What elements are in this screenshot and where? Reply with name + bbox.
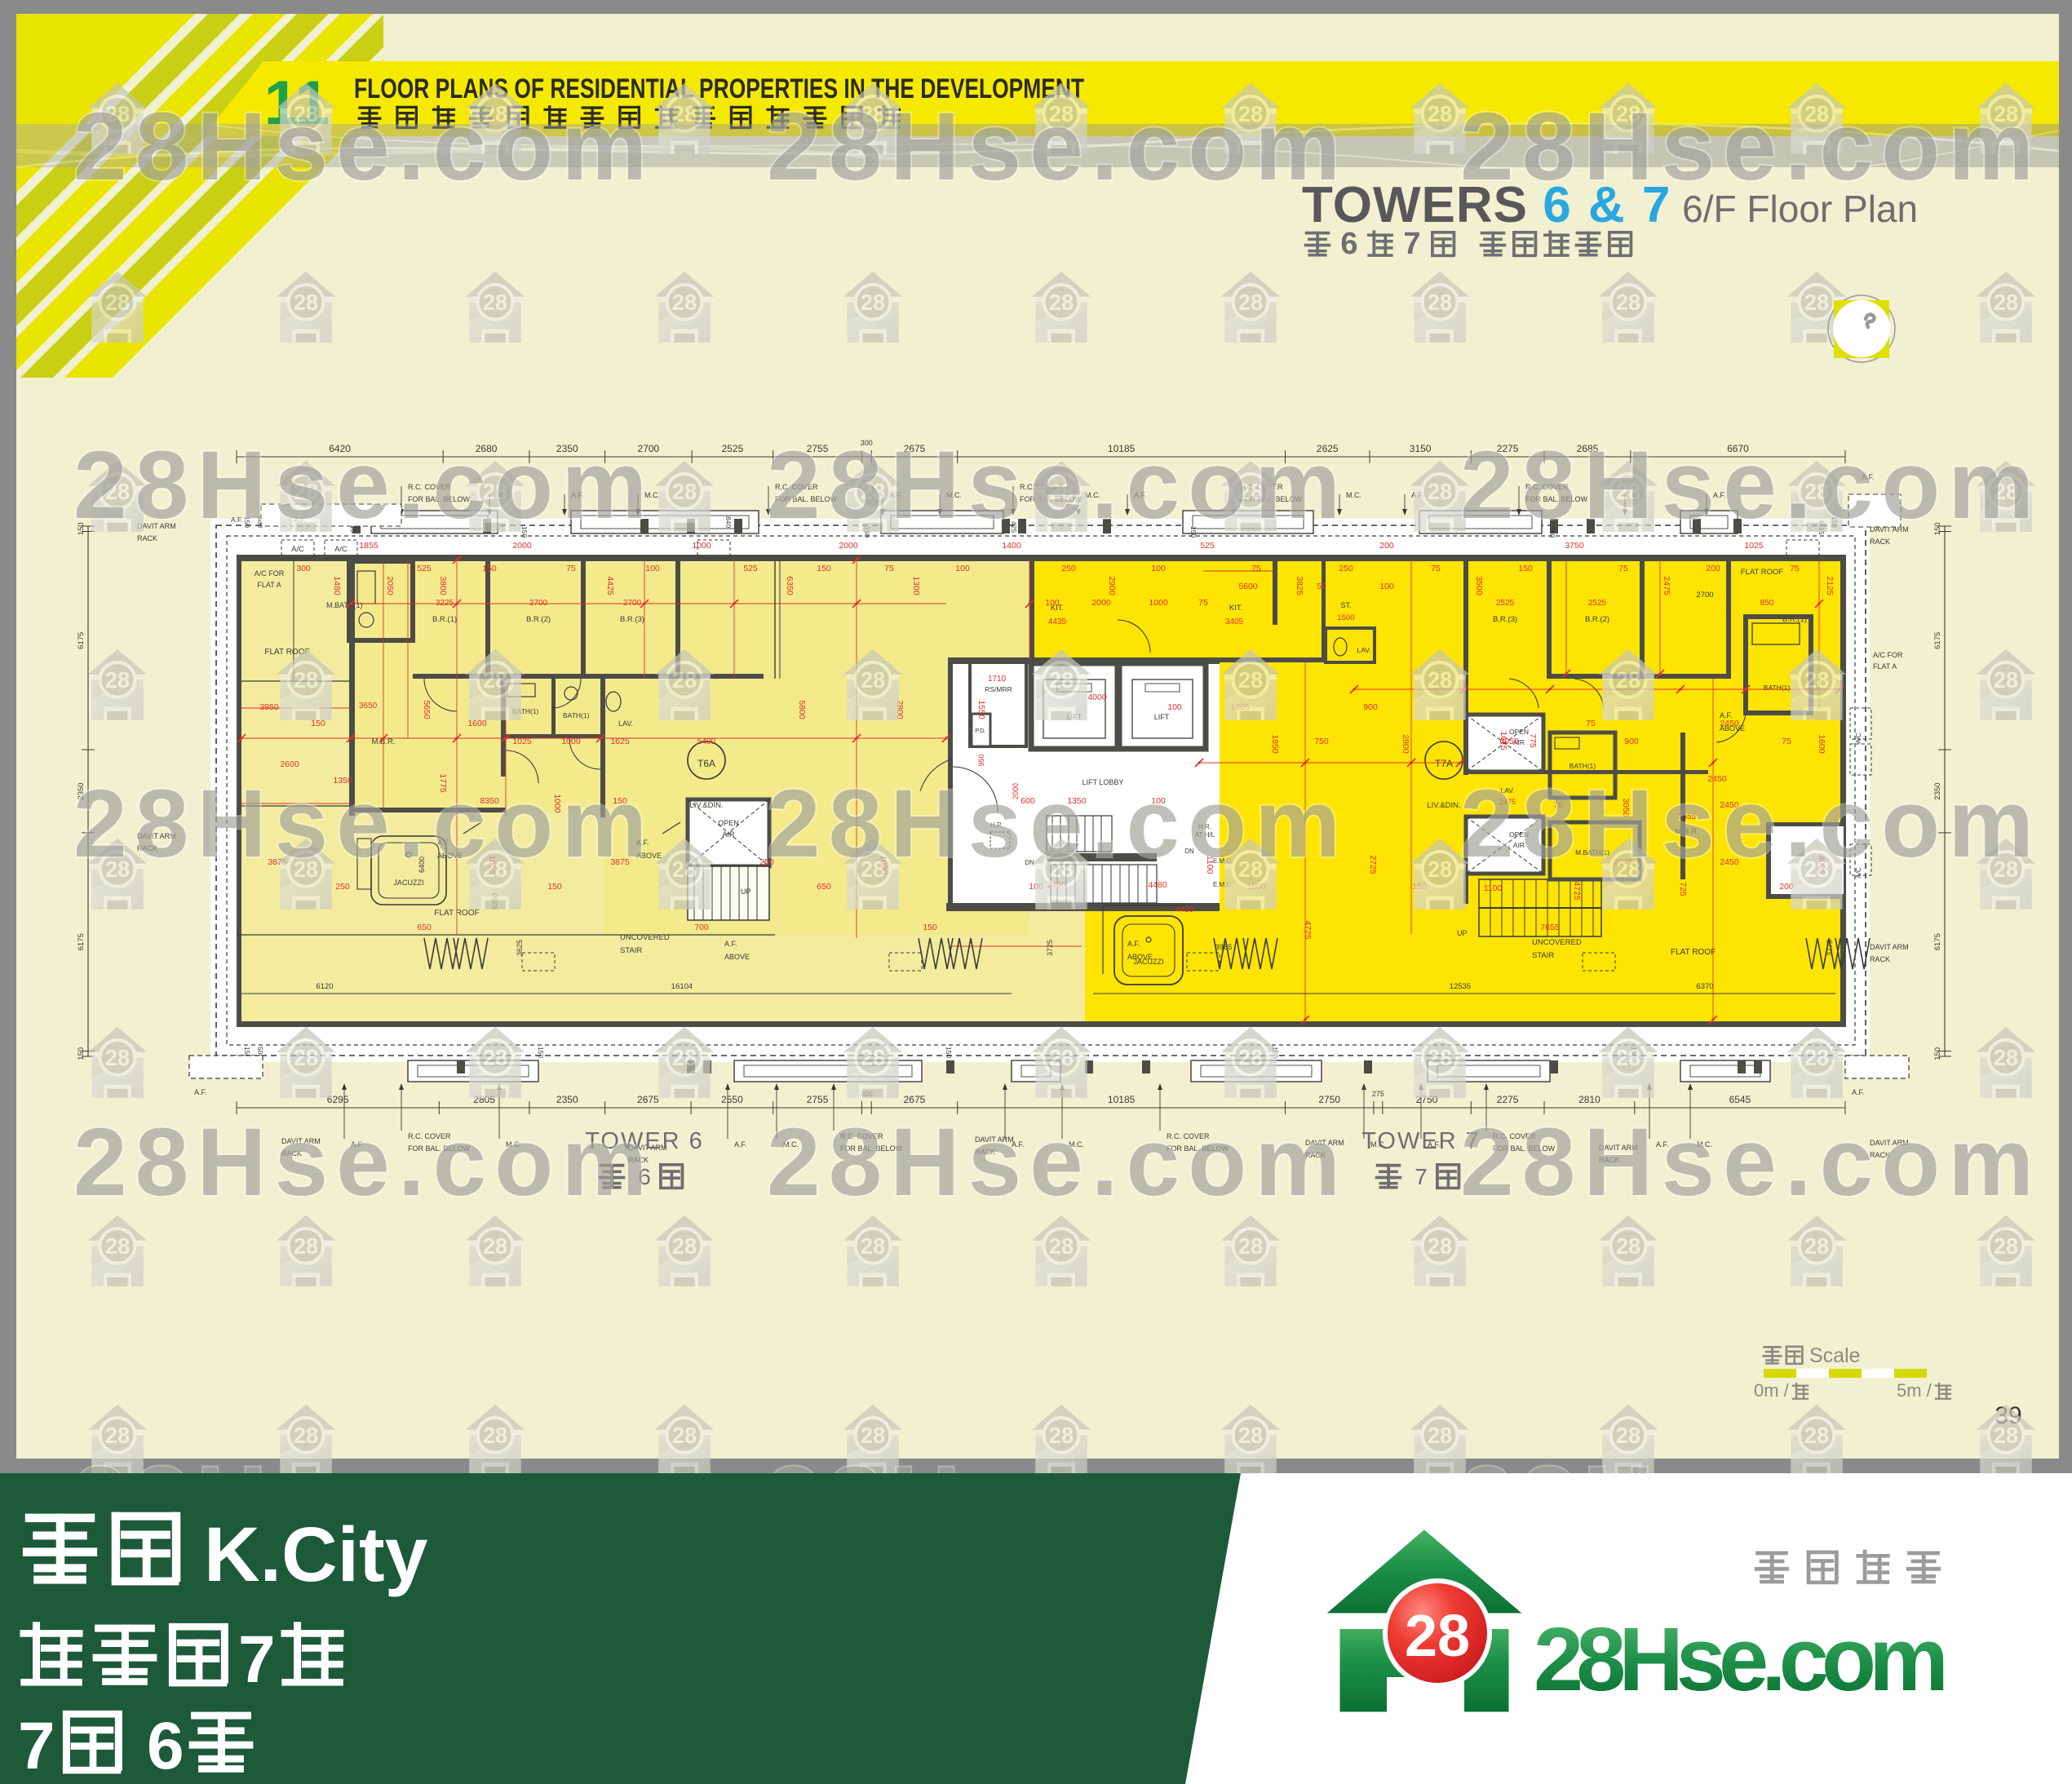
svg-text:DAVIT ARM: DAVIT ARM <box>1870 943 1909 951</box>
svg-text:4725: 4725 <box>1572 881 1582 901</box>
svg-text:JACUZZI: JACUZZI <box>394 879 424 887</box>
svg-text:100: 100 <box>1151 564 1166 573</box>
svg-text:2125: 2125 <box>1825 576 1835 595</box>
svg-text:B.R.(2): B.R.(2) <box>526 615 551 624</box>
svg-text:6: 6 <box>147 1709 184 1783</box>
svg-text:A.F.: A.F. <box>724 940 737 948</box>
svg-text:650: 650 <box>817 882 831 892</box>
svg-text:4430: 4430 <box>1175 905 1194 914</box>
svg-text:50: 50 <box>1317 582 1326 591</box>
svg-text:A.F.: A.F. <box>1720 711 1733 719</box>
svg-text:750: 750 <box>1314 737 1329 746</box>
svg-text:FLAT ROOF: FLAT ROOF <box>1671 948 1716 957</box>
svg-text:28Hse.com: 28Hse.com <box>767 432 1348 539</box>
svg-text:6545: 6545 <box>1729 1094 1751 1105</box>
svg-text:AIR: AIR <box>722 830 735 839</box>
svg-text:28Hse.com: 28Hse.com <box>767 93 1348 201</box>
svg-text:28Hse.com: 28Hse.com <box>1460 770 2042 878</box>
svg-text:BATH(1): BATH(1) <box>1764 684 1791 692</box>
svg-text:75: 75 <box>1251 564 1261 573</box>
svg-text:150: 150 <box>1933 1047 1942 1060</box>
svg-text:12535: 12535 <box>1450 982 1471 991</box>
svg-text:ABOVE: ABOVE <box>1127 953 1153 961</box>
svg-text:75: 75 <box>884 564 894 573</box>
svg-text:STAIR: STAIR <box>1532 951 1554 960</box>
svg-text:B.R.(3): B.R.(3) <box>620 615 644 624</box>
svg-text:ABOVE: ABOVE <box>1720 724 1745 733</box>
svg-text:2550: 2550 <box>721 1094 743 1105</box>
svg-text:LIV.&DIN.: LIV.&DIN. <box>689 801 723 810</box>
svg-text:28Hse.com: 28Hse.com <box>1460 432 2042 539</box>
svg-text:6350: 6350 <box>785 576 795 595</box>
svg-text:FLAT A: FLAT A <box>257 581 281 589</box>
svg-text:6175: 6175 <box>77 933 86 950</box>
svg-text:3825: 3825 <box>1295 576 1304 595</box>
svg-text:900: 900 <box>1363 702 1378 712</box>
svg-text:28Hse.com: 28Hse.com <box>73 432 655 539</box>
svg-text:3625: 3625 <box>516 940 524 956</box>
svg-text:150: 150 <box>923 923 937 932</box>
svg-text:2675: 2675 <box>637 1094 659 1105</box>
svg-text:KIT.: KIT. <box>1229 604 1242 613</box>
svg-text:ST.: ST. <box>1340 601 1351 609</box>
svg-text:6175: 6175 <box>1933 933 1942 950</box>
svg-text:2700: 2700 <box>623 599 642 608</box>
svg-text:3950: 3950 <box>259 702 279 712</box>
svg-text:2800: 2800 <box>1401 734 1410 754</box>
svg-text:75: 75 <box>1198 598 1208 608</box>
svg-text:FLAT A: FLAT A <box>1873 662 1897 671</box>
svg-text:4725: 4725 <box>1303 920 1313 940</box>
svg-text:2750: 2750 <box>1318 1094 1340 1105</box>
svg-text:16104: 16104 <box>671 982 693 991</box>
svg-text:T7A: T7A <box>1435 758 1453 769</box>
svg-text:2525: 2525 <box>1496 599 1515 608</box>
svg-text:5m /: 5m / <box>1897 1380 1933 1401</box>
svg-text:4425: 4425 <box>605 576 615 595</box>
svg-text:2900: 2900 <box>1107 576 1117 595</box>
svg-text:4000: 4000 <box>1087 693 1107 702</box>
svg-text:1480: 1480 <box>332 576 342 595</box>
svg-text:LIFT: LIFT <box>1154 713 1170 721</box>
svg-text:B.R.(3): B.R.(3) <box>1493 615 1517 624</box>
svg-text:T6A: T6A <box>697 758 715 769</box>
svg-text:A/C FOR: A/C FOR <box>1873 651 1903 659</box>
svg-text:1600: 1600 <box>1817 734 1826 754</box>
svg-text:1850: 1850 <box>1270 734 1280 754</box>
svg-text:1000: 1000 <box>561 737 581 746</box>
svg-text:200: 200 <box>1379 541 1394 551</box>
svg-text:300: 300 <box>296 564 311 573</box>
svg-text:75: 75 <box>1782 737 1791 746</box>
svg-text:B.R.(2): B.R.(2) <box>1585 615 1609 624</box>
svg-text:1025: 1025 <box>1744 541 1764 551</box>
svg-text:A/C FOR: A/C FOR <box>255 569 285 578</box>
svg-text:1855: 1855 <box>359 541 379 551</box>
svg-text:1600: 1600 <box>467 719 487 728</box>
svg-text:2600: 2600 <box>280 759 299 769</box>
svg-text:2810: 2810 <box>1578 1094 1600 1105</box>
svg-text:A/C: A/C <box>1855 733 1862 744</box>
svg-text:3800: 3800 <box>438 576 448 595</box>
svg-text:7655: 7655 <box>1540 923 1560 932</box>
svg-text:100: 100 <box>1379 582 1394 591</box>
svg-text:A.F.: A.F. <box>734 1140 747 1149</box>
svg-text:6175: 6175 <box>77 632 86 649</box>
svg-text:4435: 4435 <box>1048 618 1067 626</box>
svg-text:150: 150 <box>482 564 497 573</box>
svg-text:2525: 2525 <box>1588 599 1607 608</box>
svg-text:10185: 10185 <box>1108 1094 1136 1105</box>
svg-text:UNCOVERED: UNCOVERED <box>1532 938 1582 947</box>
svg-text:150: 150 <box>537 1047 545 1058</box>
svg-text:150: 150 <box>77 1047 86 1060</box>
svg-text:150: 150 <box>1518 564 1533 573</box>
svg-text:5800: 5800 <box>797 700 807 719</box>
svg-text:RACK: RACK <box>1870 955 1890 963</box>
svg-text:5600: 5600 <box>1238 582 1258 591</box>
svg-text:250: 250 <box>335 882 350 892</box>
svg-text:75: 75 <box>1618 564 1628 573</box>
svg-text:6: 6 <box>1340 227 1357 261</box>
svg-text:2700: 2700 <box>529 599 548 608</box>
svg-text:0m /: 0m / <box>1754 1380 1790 1401</box>
svg-text:150: 150 <box>945 1047 953 1058</box>
svg-text:UP: UP <box>1457 929 1468 937</box>
svg-text:7: 7 <box>18 1709 55 1783</box>
svg-text:LIV.&DIN.: LIV.&DIN. <box>1427 801 1460 810</box>
svg-text:6175: 6175 <box>1933 632 1942 649</box>
svg-text:525: 525 <box>417 564 432 573</box>
svg-text:ABOVE: ABOVE <box>724 953 750 961</box>
svg-text:Scale: Scale <box>1809 1344 1861 1367</box>
svg-text:75: 75 <box>566 564 576 573</box>
svg-text:2000: 2000 <box>512 541 532 551</box>
svg-text:2475: 2475 <box>1662 576 1671 595</box>
svg-text:A/C: A/C <box>291 545 304 554</box>
svg-text:5400: 5400 <box>697 737 716 746</box>
svg-text:2000: 2000 <box>839 541 858 551</box>
svg-text:3150: 3150 <box>1410 443 1432 454</box>
svg-text:3500: 3500 <box>1474 576 1484 595</box>
svg-text:3225: 3225 <box>436 599 454 608</box>
svg-text:275: 275 <box>1372 1090 1384 1098</box>
svg-text:250: 250 <box>1061 564 1076 573</box>
svg-text:2700: 2700 <box>1696 591 1713 600</box>
svg-text:100: 100 <box>1167 702 1182 712</box>
svg-text:28Hse.com: 28Hse.com <box>1534 1609 1943 1710</box>
svg-text:STAIR: STAIR <box>620 946 642 955</box>
svg-text:2725: 2725 <box>1368 855 1378 874</box>
svg-text:100: 100 <box>1045 598 1060 608</box>
svg-text:FLAT ROOF: FLAT ROOF <box>1741 568 1784 577</box>
svg-text:1025: 1025 <box>512 737 532 746</box>
svg-text:150: 150 <box>311 719 325 728</box>
svg-text:950: 950 <box>977 754 985 766</box>
svg-text:3775: 3775 <box>1826 940 1834 956</box>
svg-text:2350: 2350 <box>556 1094 578 1105</box>
svg-text:100: 100 <box>645 564 660 573</box>
svg-text:3725: 3725 <box>1046 940 1054 956</box>
svg-text:K.City: K.City <box>204 1512 428 1598</box>
svg-text:7: 7 <box>1403 227 1420 261</box>
svg-text:LAV.: LAV. <box>618 719 633 728</box>
svg-text:150: 150 <box>547 882 562 892</box>
svg-text:B.R.(1): B.R.(1) <box>432 615 457 624</box>
svg-text:75: 75 <box>1790 564 1800 573</box>
svg-text:650: 650 <box>417 923 432 932</box>
svg-text:3750: 3750 <box>1565 541 1584 551</box>
svg-text:BATH(1): BATH(1) <box>563 711 590 719</box>
svg-text:200: 200 <box>1706 564 1720 573</box>
svg-text:3985: 3985 <box>1215 943 1232 952</box>
svg-text:28Hse.com: 28Hse.com <box>1460 1109 2042 1216</box>
svg-text:3405: 3405 <box>1225 618 1244 626</box>
svg-text:75: 75 <box>1586 719 1596 728</box>
svg-text:LAV.: LAV. <box>1357 646 1370 654</box>
svg-text:28Hse.com: 28Hse.com <box>767 1109 1348 1216</box>
svg-text:2050: 2050 <box>385 576 395 595</box>
svg-text:150: 150 <box>817 564 831 573</box>
svg-text:1000: 1000 <box>692 541 711 551</box>
svg-text:7: 7 <box>238 1622 276 1697</box>
svg-text:28Hse.com: 28Hse.com <box>767 770 1348 878</box>
svg-text:1500: 1500 <box>1337 613 1354 622</box>
svg-text:OPEN: OPEN <box>1509 728 1529 736</box>
svg-text:900: 900 <box>1624 737 1639 746</box>
svg-text:775: 775 <box>1528 733 1538 748</box>
svg-text:1710: 1710 <box>988 675 1007 684</box>
svg-text:6120: 6120 <box>316 982 333 991</box>
svg-text:7: 7 <box>1415 1164 1428 1189</box>
svg-text:840: 840 <box>724 516 733 528</box>
svg-text:2000: 2000 <box>1091 598 1111 608</box>
svg-text:3650: 3650 <box>359 702 378 711</box>
svg-text:1400: 1400 <box>1002 541 1021 551</box>
svg-text:UP: UP <box>741 888 751 896</box>
svg-text:1675: 1675 <box>1499 731 1508 750</box>
svg-text:BATH(1): BATH(1) <box>1569 762 1596 770</box>
svg-text:4480: 4480 <box>1148 880 1167 890</box>
svg-text:2675: 2675 <box>904 1094 926 1105</box>
svg-text:28Hse.com: 28Hse.com <box>73 1109 655 1216</box>
svg-text:28Hse.com: 28Hse.com <box>1460 93 2042 201</box>
svg-text:2755: 2755 <box>807 1094 829 1105</box>
svg-text:75: 75 <box>1431 564 1441 573</box>
svg-text:850: 850 <box>1760 599 1774 608</box>
svg-text:525: 525 <box>1200 541 1215 551</box>
svg-text:OPEN: OPEN <box>718 819 739 827</box>
svg-text:P.D.: P.D. <box>975 727 986 734</box>
svg-text:1100: 1100 <box>1484 883 1503 893</box>
svg-text:100: 100 <box>955 564 970 573</box>
svg-text:725: 725 <box>1678 882 1688 896</box>
svg-text:2275: 2275 <box>1497 1094 1519 1105</box>
svg-text:5650: 5650 <box>422 700 432 719</box>
svg-text:A.F.: A.F. <box>1852 1088 1865 1096</box>
svg-text:28Hse.com: 28Hse.com <box>73 770 655 878</box>
svg-text:700: 700 <box>694 923 709 932</box>
svg-text:250: 250 <box>1339 564 1353 573</box>
svg-text:1550: 1550 <box>976 700 986 719</box>
svg-text:A/C: A/C <box>334 545 348 554</box>
svg-text:A.F.: A.F. <box>194 1088 207 1096</box>
svg-text:1000: 1000 <box>1149 598 1168 608</box>
svg-text:525: 525 <box>743 564 758 573</box>
svg-text:1625: 1625 <box>610 737 630 746</box>
svg-text:1300: 1300 <box>911 576 921 595</box>
svg-text:28: 28 <box>1405 1604 1470 1669</box>
svg-text:A.F.: A.F. <box>1127 940 1140 948</box>
svg-text:6370: 6370 <box>1696 982 1713 991</box>
svg-text:2525: 2525 <box>722 443 744 454</box>
svg-text:28Hse.com: 28Hse.com <box>73 93 655 201</box>
svg-text:RS/MRR: RS/MRR <box>985 685 1012 693</box>
